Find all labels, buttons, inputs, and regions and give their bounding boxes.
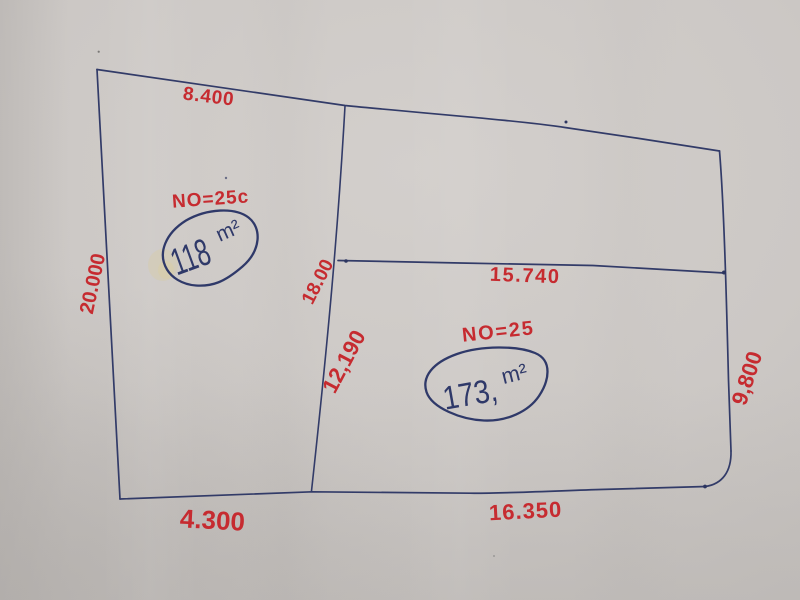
svg-text:15.740: 15.740 xyxy=(489,264,561,288)
svg-text:16.350: 16.350 xyxy=(488,497,563,526)
svg-text:4.300: 4.300 xyxy=(179,503,246,536)
